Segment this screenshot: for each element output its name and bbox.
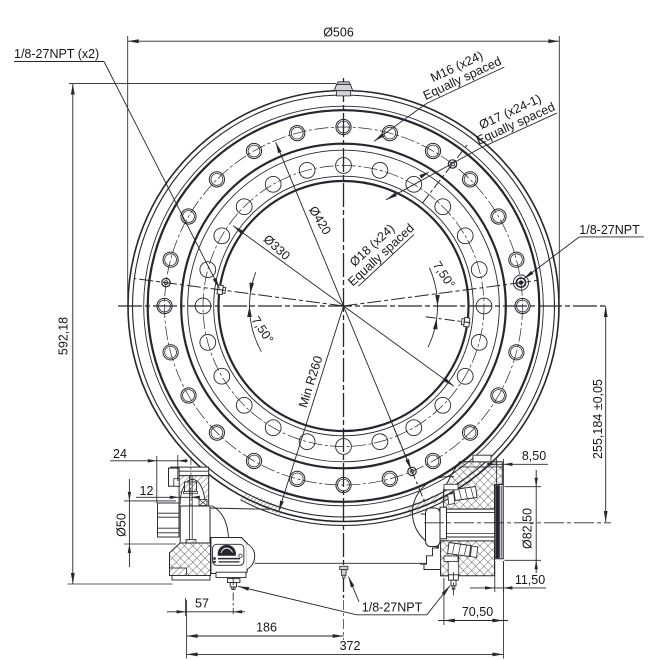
svg-text:Ø506: Ø506 <box>323 26 354 40</box>
svg-text:1/8-27NPT (x2): 1/8-27NPT (x2) <box>14 47 99 61</box>
svg-text:372: 372 <box>340 639 361 653</box>
svg-text:8,50: 8,50 <box>522 449 546 463</box>
svg-text:57: 57 <box>195 597 209 611</box>
svg-text:12: 12 <box>140 484 154 498</box>
svg-text:592,18: 592,18 <box>57 317 71 355</box>
svg-text:1/8-27NPT: 1/8-27NPT <box>362 601 423 615</box>
svg-text:255,184 ±0,05: 255,184 ±0,05 <box>591 379 605 459</box>
svg-text:1/8-27NPT: 1/8-27NPT <box>579 223 640 237</box>
svg-text:24: 24 <box>113 447 127 461</box>
svg-text:11,50: 11,50 <box>515 573 545 587</box>
svg-text:Ø50: Ø50 <box>115 513 129 537</box>
svg-text:186: 186 <box>256 621 277 635</box>
svg-text:70,50: 70,50 <box>462 605 493 619</box>
svg-text:Ø82,50: Ø82,50 <box>521 508 535 549</box>
